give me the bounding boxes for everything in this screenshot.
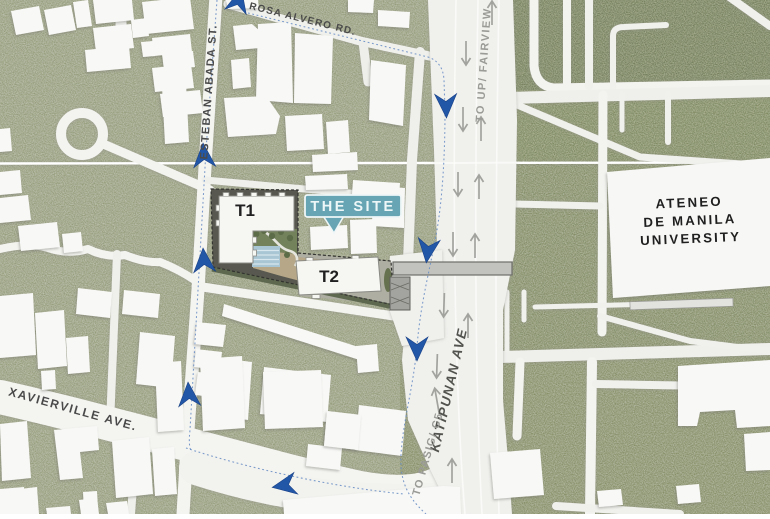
svg-text:ATENEO: ATENEO xyxy=(655,194,723,212)
svg-text:T2: T2 xyxy=(319,267,339,286)
svg-text:T1: T1 xyxy=(235,201,255,220)
svg-text:THE SITE: THE SITE xyxy=(310,199,395,215)
